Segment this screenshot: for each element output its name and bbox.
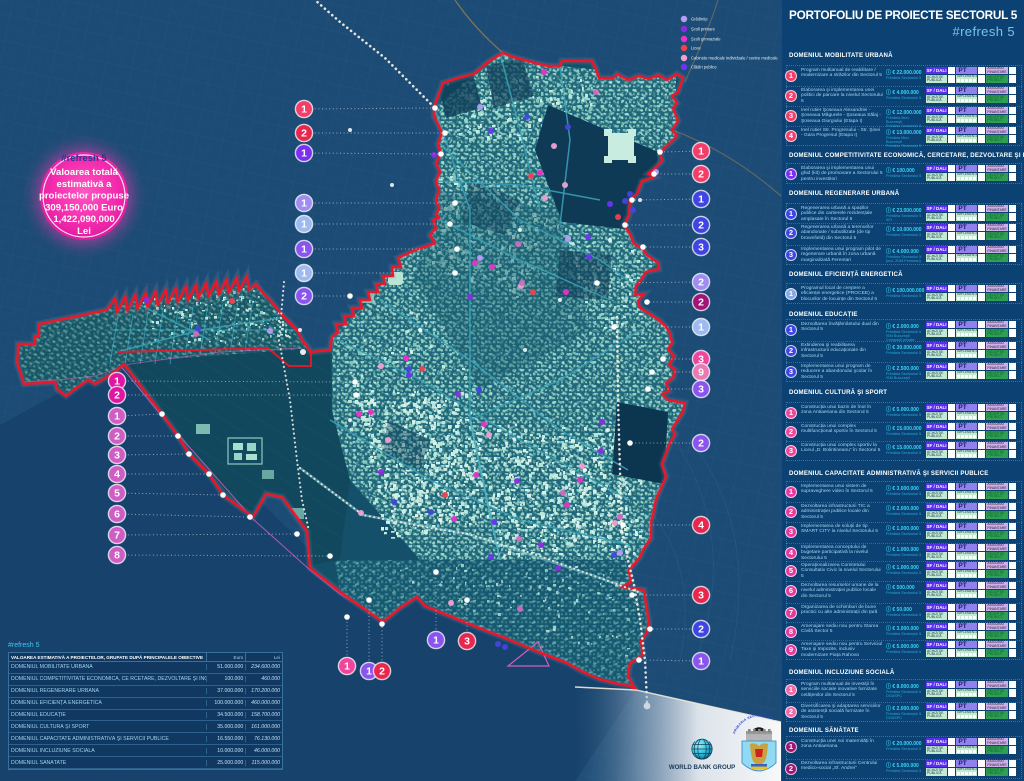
svg-text:2: 2 — [698, 276, 704, 288]
svg-text:5: 5 — [114, 487, 120, 499]
svg-text:proiectelor propuse: proiectelor propuse — [39, 191, 129, 202]
svg-text:7: 7 — [114, 529, 120, 541]
svg-text:Grădinițe: Grădinițe — [691, 17, 708, 22]
svg-text:2: 2 — [698, 437, 704, 449]
svg-text:3: 3 — [698, 589, 704, 601]
svg-text:1: 1 — [433, 634, 439, 646]
svg-text:2: 2 — [114, 389, 120, 401]
svg-text:1: 1 — [301, 103, 307, 115]
svg-text:Licee: Licee — [691, 46, 702, 51]
svg-text:#refresh 5: #refresh 5 — [61, 153, 107, 164]
svg-text:1: 1 — [301, 243, 307, 255]
svg-text:2: 2 — [114, 430, 120, 442]
svg-text:4: 4 — [698, 519, 704, 531]
svg-text:1: 1 — [301, 197, 307, 209]
svg-text:1: 1 — [114, 375, 120, 387]
svg-text:1: 1 — [344, 660, 350, 672]
svg-text:1,422,090,000: 1,422,090,000 — [53, 214, 114, 225]
svg-text:2: 2 — [301, 127, 307, 139]
svg-text:Cabinete medicale individuale: Cabinete medicale individuale / centre m… — [691, 56, 778, 61]
svg-text:1: 1 — [698, 193, 704, 205]
svg-text:Clădiri publice: Clădiri publice — [691, 65, 717, 70]
svg-text:6: 6 — [114, 508, 120, 520]
svg-text:3: 3 — [698, 241, 704, 253]
svg-text:1: 1 — [301, 267, 307, 279]
svg-text:9: 9 — [698, 366, 704, 378]
svg-text:2: 2 — [698, 296, 704, 308]
svg-text:4: 4 — [114, 468, 120, 480]
svg-text:WORLD BANK GROUP: WORLD BANK GROUP — [669, 764, 735, 771]
svg-text:3: 3 — [464, 635, 470, 647]
svg-text:1: 1 — [301, 147, 307, 159]
svg-text:1: 1 — [301, 218, 307, 230]
svg-text:2: 2 — [698, 623, 704, 635]
svg-text:3: 3 — [698, 383, 704, 395]
svg-text:1: 1 — [698, 145, 704, 157]
svg-text:1: 1 — [698, 655, 704, 667]
svg-text:2: 2 — [698, 219, 704, 231]
svg-text:8: 8 — [114, 549, 120, 561]
svg-text:2: 2 — [301, 290, 307, 302]
svg-text:Valoarea totală: Valoarea totală — [50, 167, 118, 178]
svg-text:2: 2 — [379, 665, 385, 677]
svg-text:1: 1 — [366, 665, 372, 677]
svg-text:3: 3 — [114, 449, 120, 461]
svg-text:2: 2 — [698, 168, 704, 180]
svg-text:Lei: Lei — [77, 226, 91, 237]
svg-text:estimativă a: estimativă a — [57, 179, 113, 190]
svg-text:Școli primare: Școli primare — [691, 27, 716, 32]
svg-text:309,150,000 Euro: 309,150,000 Euro — [45, 202, 123, 213]
svg-text:1: 1 — [698, 321, 704, 333]
svg-text:Școli gimnaziale: Școli gimnaziale — [691, 37, 721, 42]
svg-text:1: 1 — [114, 410, 120, 422]
